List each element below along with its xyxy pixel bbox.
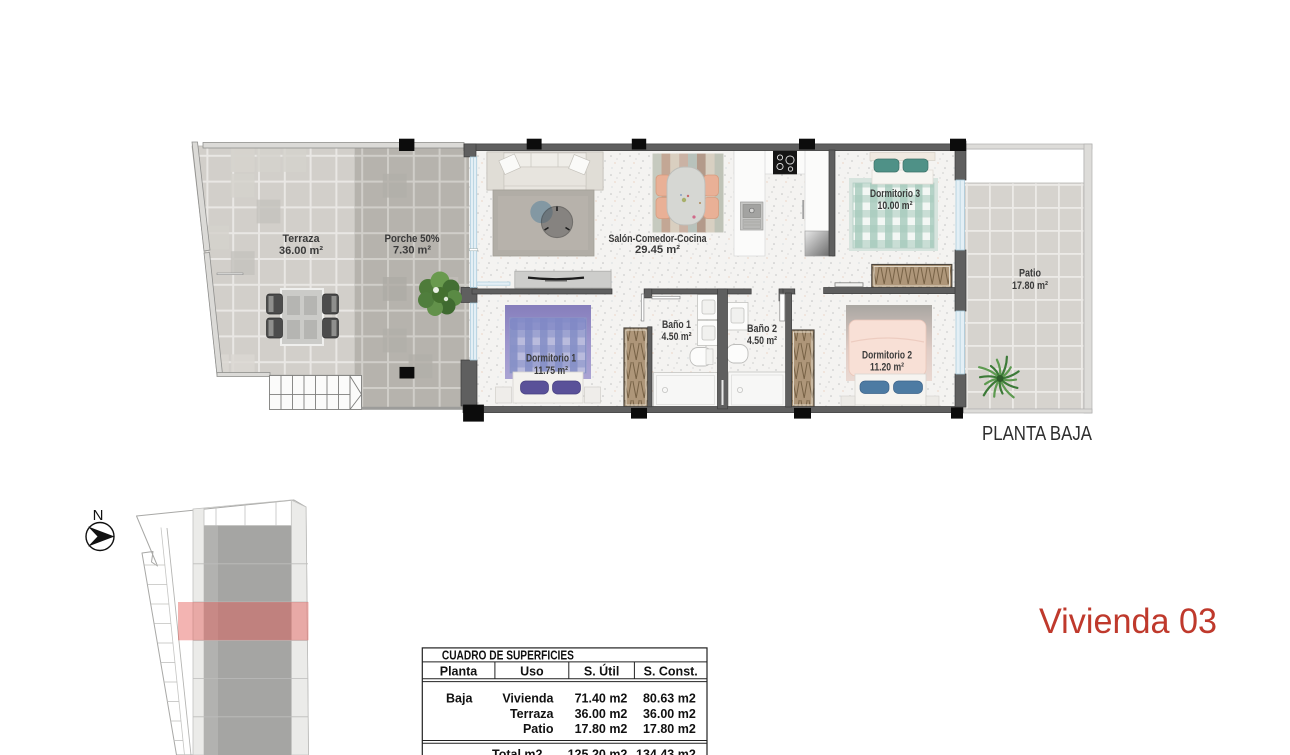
svg-text:Dormitorio 3: Dormitorio 3	[870, 188, 920, 200]
svg-text:29.45 m²: 29.45 m²	[635, 244, 680, 256]
svg-text:36.00 m2: 36.00 m2	[643, 707, 696, 721]
svg-text:Terraza: Terraza	[283, 233, 321, 245]
svg-text:17.80 m2: 17.80 m2	[575, 722, 628, 736]
svg-text:80.63 m2: 80.63 m2	[643, 692, 696, 706]
svg-text:134.43 m2: 134.43 m2	[636, 748, 696, 755]
svg-text:17.80 m²: 17.80 m²	[1012, 280, 1048, 292]
svg-text:Vivienda: Vivienda	[502, 692, 554, 706]
svg-text:Dormitorio 1: Dormitorio 1	[526, 353, 576, 365]
svg-text:Dormitorio 2: Dormitorio 2	[862, 350, 912, 362]
svg-text:S. Const.: S. Const.	[644, 665, 698, 679]
svg-text:Baja: Baja	[446, 692, 473, 706]
svg-text:7.30 m²: 7.30 m²	[393, 245, 431, 257]
svg-text:Porche 50%: Porche 50%	[385, 233, 440, 245]
svg-text:Total m2: Total m2	[492, 748, 543, 755]
svg-text:36.00 m²: 36.00 m²	[279, 245, 323, 257]
svg-text:17.80 m2: 17.80 m2	[643, 722, 696, 736]
svg-text:Terraza: Terraza	[510, 707, 555, 721]
svg-text:Baño 2: Baño 2	[747, 323, 777, 335]
svg-text:10.00 m²: 10.00 m²	[878, 200, 913, 212]
svg-text:11.75 m²: 11.75 m²	[534, 365, 568, 377]
svg-text:11.20 m²: 11.20 m²	[870, 362, 904, 374]
svg-text:Patio: Patio	[1019, 268, 1041, 280]
svg-text:PLANTA BAJA: PLANTA BAJA	[982, 423, 1093, 445]
svg-text:36.00 m2: 36.00 m2	[575, 707, 628, 721]
svg-text:4.50 m²: 4.50 m²	[662, 331, 692, 343]
svg-text:CUADRO DE SUPERFICIES: CUADRO DE SUPERFICIES	[442, 648, 574, 662]
svg-text:Planta: Planta	[440, 665, 479, 679]
svg-text:4.50 m²: 4.50 m²	[747, 335, 777, 347]
svg-text:125.20 m2: 125.20 m2	[568, 748, 628, 755]
svg-text:N: N	[93, 507, 104, 524]
svg-text:S. Útil: S. Útil	[584, 664, 619, 679]
svg-text:71.40 m2: 71.40 m2	[575, 692, 628, 706]
svg-text:Vivienda 03: Vivienda 03	[1039, 602, 1217, 641]
svg-text:Patio: Patio	[523, 722, 554, 736]
svg-text:Uso: Uso	[520, 665, 544, 679]
svg-text:Baño 1: Baño 1	[662, 319, 691, 331]
